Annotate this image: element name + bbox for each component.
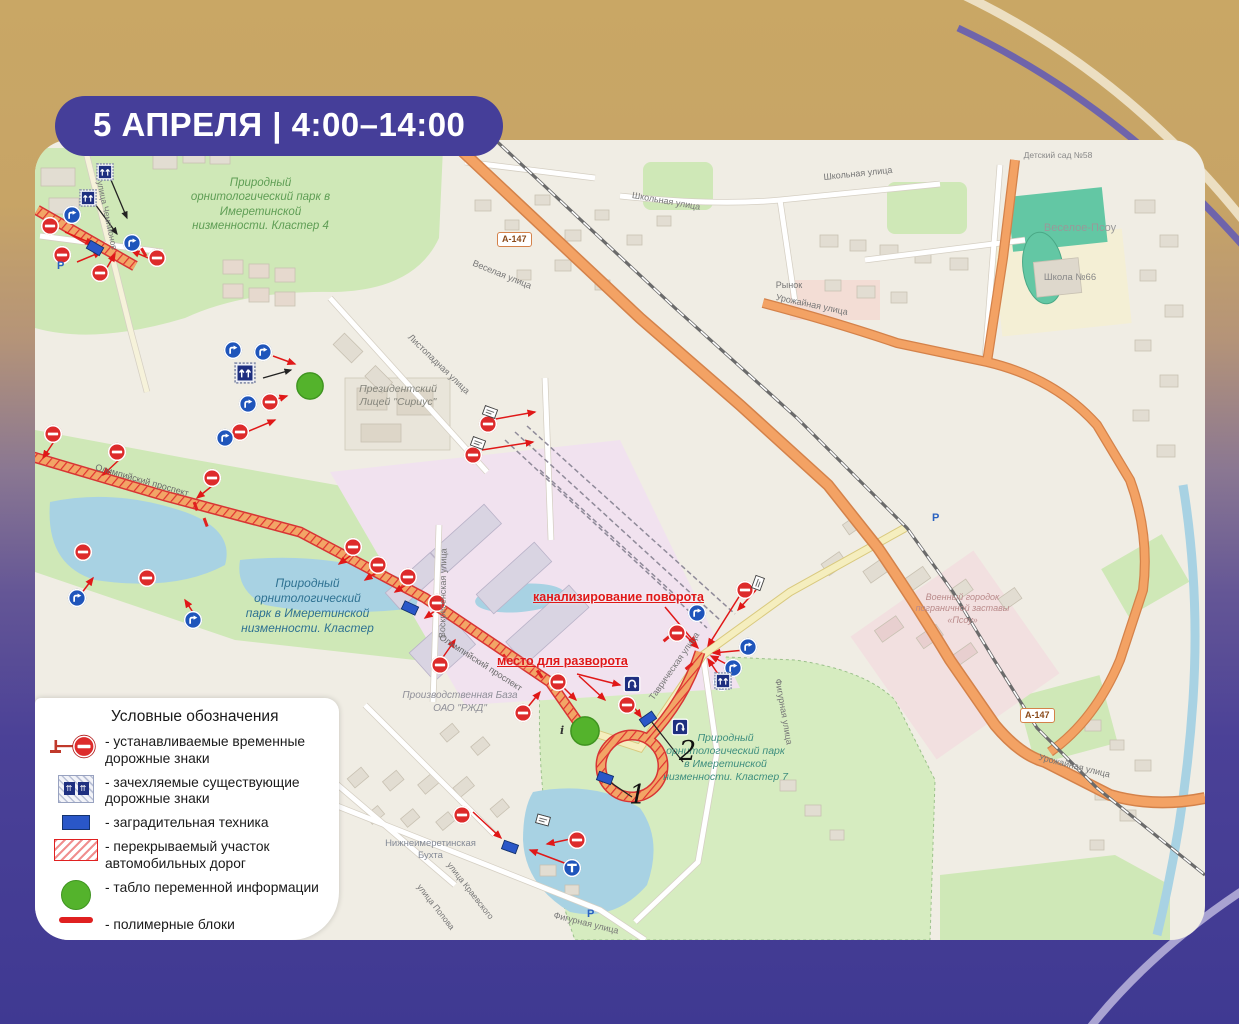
legend-label: - полимерные блоки (105, 917, 327, 934)
legend-label: - табло переменной информации (105, 880, 327, 897)
legend-label: - заградительная техника (105, 815, 327, 832)
barrier-equipment-icon (47, 815, 105, 830)
channeling-annotation: канализирование поворота (533, 590, 704, 604)
legend-row-barrier: - заградительная техника (47, 815, 327, 832)
date-time-badge: 5 АПРЕЛЯ | 4:00–14:00 (55, 96, 503, 156)
legend-row-temporary-signs: - устанавливаемые временные дорожные зна… (47, 734, 327, 768)
legend-label: - перекрываемый участок автомобильных до… (105, 839, 327, 873)
legend-title: Условные обозначения (47, 708, 327, 726)
legend-panel: Условные обозначения - устанавливаемые в… (35, 698, 339, 940)
legend-row-covered-signs: ⇈ ⇈ - зачехляемые существующие дорожные … (47, 775, 327, 809)
road-closure-map: Природный орнитологический парк в Имерет… (35, 140, 1205, 940)
temporary-sign-icon (47, 734, 105, 760)
marker-number-1: 1 (629, 780, 646, 811)
poster-background: Природный орнитологический парк в Имерет… (0, 0, 1239, 1024)
legend-label: - зачехляемые существующие дорожные знак… (105, 775, 327, 809)
a147-shield-1: А-147 (497, 232, 532, 247)
variable-message-board-icon (47, 880, 105, 910)
covered-sign-icon: ⇈ ⇈ (47, 775, 105, 803)
turnaround-annotation: место для разворота (497, 654, 628, 668)
legend-row-polymer-blocks: - полимерные блоки (47, 917, 327, 934)
legend-row-closed-road: - перекрываемый участок автомобильных до… (47, 839, 327, 873)
legend-label: - устанавливаемые временные дорожные зна… (105, 734, 327, 768)
marker-number-2: 2 (679, 736, 696, 767)
polymer-blocks-icon (47, 917, 105, 923)
a147-shield-2: А-147 (1020, 708, 1055, 723)
legend-row-message-board: - табло переменной информации (47, 880, 327, 910)
closed-road-section-icon (47, 839, 105, 861)
